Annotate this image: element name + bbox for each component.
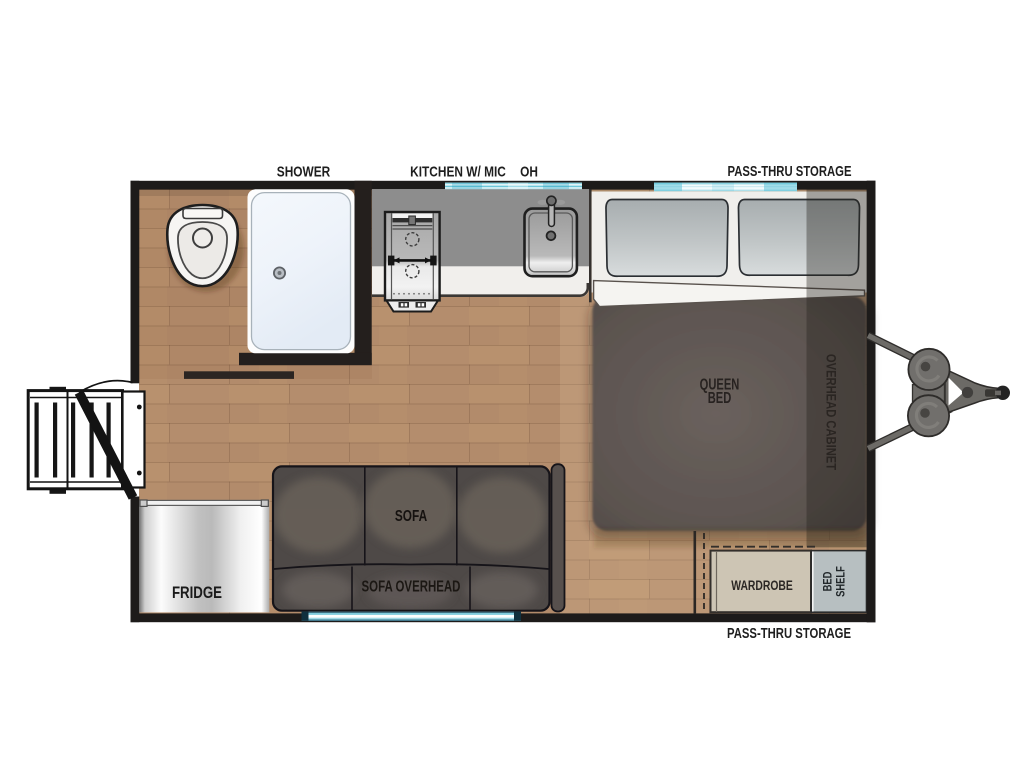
svg-text:SOFA OVERHEAD: SOFA OVERHEAD xyxy=(362,578,461,595)
svg-text:FRIDGE: FRIDGE xyxy=(172,584,222,603)
svg-text:BED: BED xyxy=(708,389,732,406)
svg-text:PASS-THRU STORAGE: PASS-THRU STORAGE xyxy=(728,163,852,180)
svg-text:WARDROBE: WARDROBE xyxy=(731,577,793,593)
svg-text:OVERHEAD CABINET: OVERHEAD CABINET xyxy=(823,354,838,470)
svg-text:SHELF: SHELF xyxy=(834,566,847,597)
svg-text:OH: OH xyxy=(520,163,538,179)
svg-text:KITCHEN W/ MIC: KITCHEN W/ MIC xyxy=(410,163,506,179)
svg-text:PASS-THRU STORAGE: PASS-THRU STORAGE xyxy=(727,625,851,642)
svg-text:SOFA: SOFA xyxy=(395,506,427,524)
svg-text:SHOWER: SHOWER xyxy=(277,163,331,179)
svg-text:BED: BED xyxy=(821,571,834,591)
